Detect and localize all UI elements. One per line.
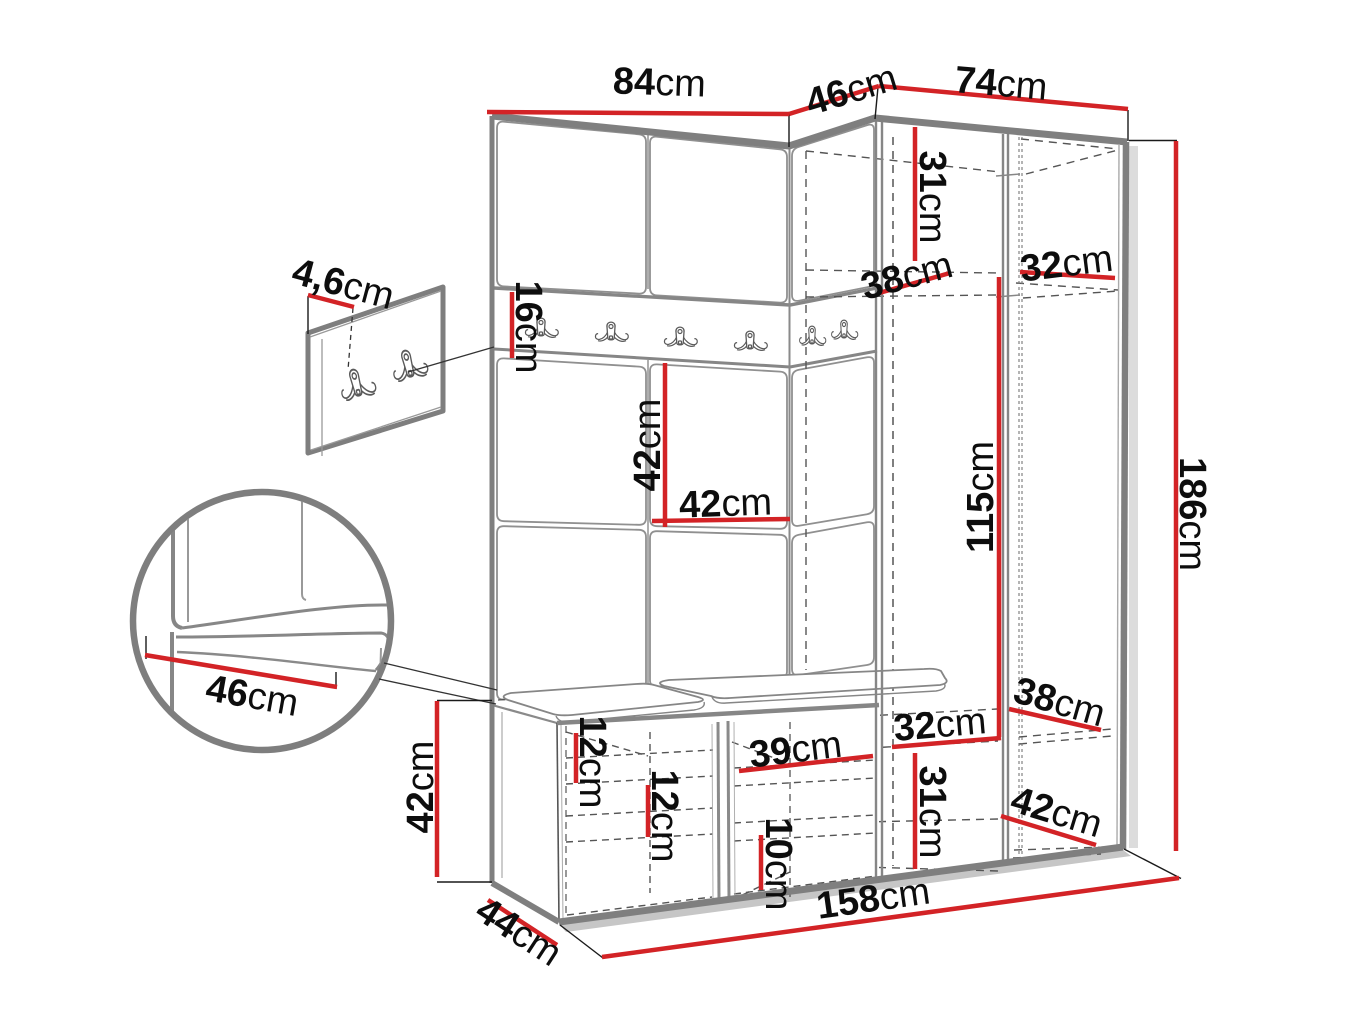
- svg-text:115cm: 115cm: [960, 441, 1002, 553]
- svg-text:42cm: 42cm: [400, 741, 442, 834]
- svg-text:42cm: 42cm: [678, 481, 772, 526]
- svg-text:42cm: 42cm: [627, 399, 669, 492]
- svg-text:186cm: 186cm: [1171, 457, 1213, 571]
- svg-text:74cm: 74cm: [953, 59, 1049, 109]
- svg-text:84cm: 84cm: [612, 60, 706, 105]
- svg-text:31cm: 31cm: [911, 151, 953, 244]
- svg-text:12cm: 12cm: [571, 716, 613, 809]
- svg-text:31cm: 31cm: [911, 766, 953, 859]
- svg-text:10cm: 10cm: [757, 818, 799, 911]
- svg-text:12cm: 12cm: [643, 770, 685, 863]
- svg-text:32cm: 32cm: [892, 700, 988, 750]
- svg-text:16cm: 16cm: [507, 281, 549, 374]
